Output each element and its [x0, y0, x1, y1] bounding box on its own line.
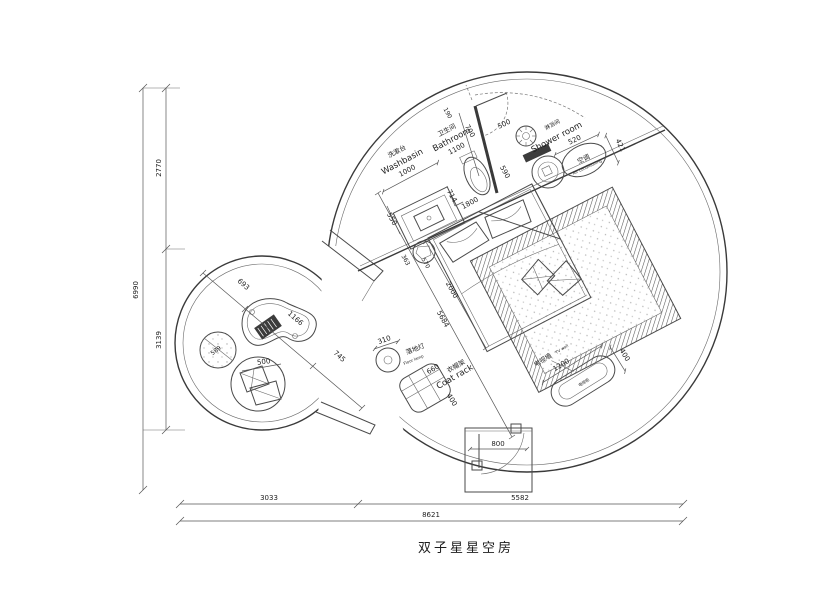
rug-dot-texture	[489, 206, 661, 373]
dim-bottom-right: 5582	[511, 494, 529, 502]
vestibule-outline	[465, 428, 532, 492]
dim-vanity-depth: 550	[385, 211, 398, 227]
floor-lamp-label-zh: 落地灯	[404, 341, 426, 357]
sink-basin	[414, 205, 444, 231]
tv-cabinet-label: 电视柜	[577, 376, 590, 387]
cushion-pillow-2	[250, 381, 281, 405]
cushion-pillow-1	[240, 366, 269, 392]
coat-rack-dims: 660 衣帽架 Coat rack 400	[425, 357, 475, 408]
dim-bottom-left: 3033	[260, 494, 278, 502]
dim-tv-depth: 400	[618, 347, 632, 363]
drawing-title: 双子星星空房	[418, 540, 514, 556]
dim-bed-length: 2000	[444, 280, 460, 299]
dim-stool-gap: 570	[419, 257, 431, 271]
dim-shower-door: 500	[496, 118, 512, 131]
floor-plan-drawing: 空调 Air conditioning 520 421	[0, 0, 837, 592]
shower-head-icon	[516, 126, 536, 146]
shower-head-center	[523, 133, 530, 140]
toilet-seat	[467, 165, 491, 194]
dim-rack-depth: 400	[445, 392, 459, 408]
dim-left-upper: 2770	[155, 159, 163, 177]
dim-wall-590: 590	[498, 164, 511, 180]
dim-annex-seg2: 1166	[286, 310, 305, 328]
dim-bed-width: 1800	[460, 196, 479, 211]
left-dimensions: 6990 2770 3139	[132, 84, 185, 494]
floor-cushion-seat: 500	[231, 357, 285, 411]
sink-drain-icon	[426, 215, 431, 220]
dim-annex-seg1: 693	[236, 277, 251, 292]
dim-lamp: 310	[377, 334, 392, 346]
pouf-seat: 589	[200, 332, 236, 368]
floor-lamp-label-en: Floor lamp	[403, 353, 425, 366]
shower-boundary-dash-2	[475, 93, 585, 118]
dim-ac-depth: 421	[614, 138, 627, 154]
toilet	[457, 150, 496, 199]
shower-door-leaf	[476, 93, 507, 106]
corridor-door-jamb	[362, 281, 374, 301]
floor-plan-page: 空调 Air conditioning 520 421	[0, 0, 837, 592]
dim-stool: 363	[399, 254, 411, 268]
kidney-table-top	[242, 299, 316, 346]
dim-left-lower: 3139	[155, 331, 163, 349]
pillow-right-crease	[491, 206, 523, 226]
bed-dim-group: 363 570 2000 5684	[375, 191, 515, 439]
dim-toilet: 714	[445, 188, 459, 204]
dim-entry-door: 800	[491, 440, 504, 448]
dim-left-total: 6990	[132, 281, 140, 299]
cushion-pillow-2-crease	[250, 388, 281, 399]
rug	[470, 187, 680, 392]
table-keyboard	[254, 314, 282, 339]
bottom-dimensions: 3033 5582 8621	[176, 494, 687, 525]
shower-labels: 淋浴间 Shower room	[524, 109, 585, 156]
kidney-table	[242, 299, 316, 346]
floor-lamp-pole	[384, 356, 392, 364]
dim-bottom-total: 8621	[422, 511, 440, 519]
dim-cushion: 500	[257, 357, 271, 367]
shower-label-zh: 淋浴间	[543, 117, 561, 132]
dim-diagonal: 5684	[435, 309, 451, 329]
shower-door-swing-arc	[483, 92, 508, 136]
dim-wall-top: 190	[441, 107, 453, 121]
stool-seat	[542, 166, 553, 177]
